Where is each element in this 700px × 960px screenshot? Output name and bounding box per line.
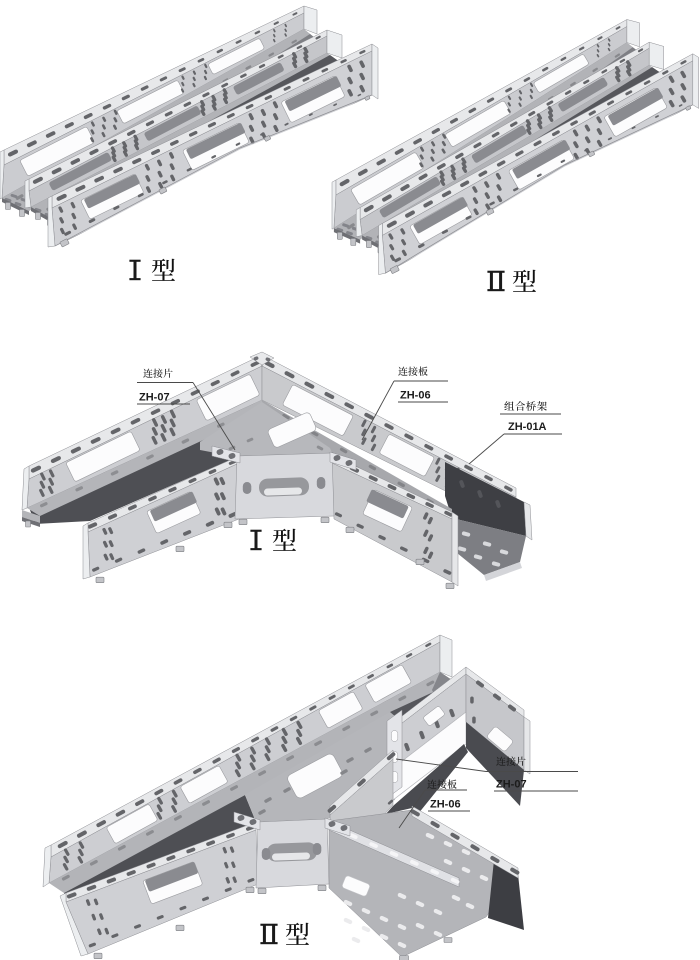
svg-text:ZH-07: ZH-07 (139, 392, 170, 404)
svg-text:ZH-07: ZH-07 (496, 779, 527, 791)
svg-text:ZH-06: ZH-06 (400, 390, 431, 402)
svg-text:ZH-06: ZH-06 (430, 799, 461, 811)
svg-text:ZH-01A: ZH-01A (508, 421, 547, 433)
